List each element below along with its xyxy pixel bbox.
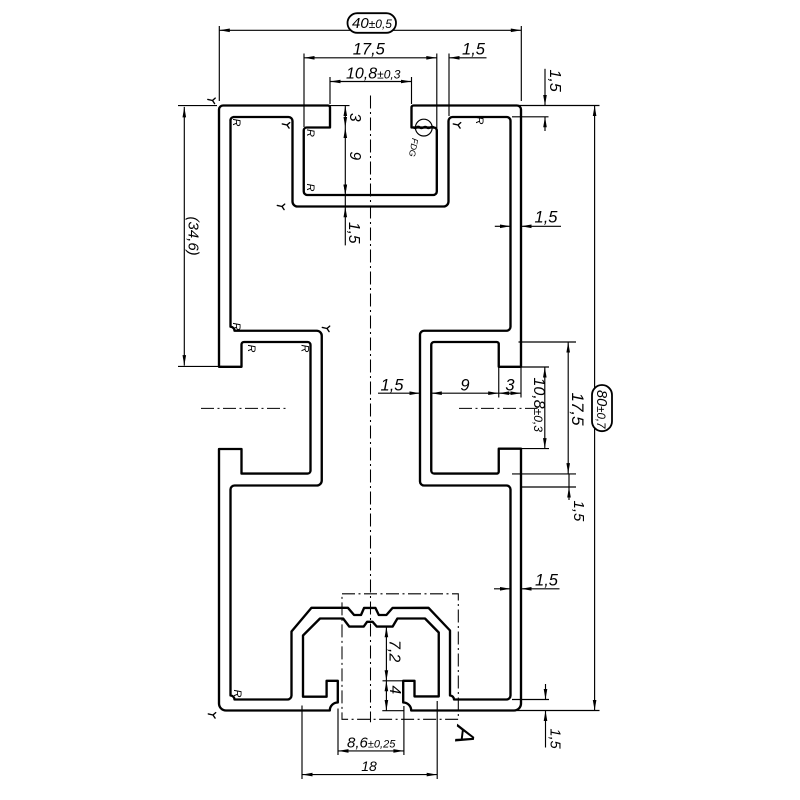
svg-text:18: 18 <box>361 758 377 774</box>
svg-text:80±0,7: 80±0,7 <box>593 390 609 429</box>
svg-text:1,5: 1,5 <box>546 70 563 92</box>
svg-text:R: R <box>245 345 257 353</box>
svg-text:R: R <box>230 119 242 127</box>
svg-text:9: 9 <box>346 152 363 161</box>
svg-text:1,5: 1,5 <box>381 377 405 395</box>
svg-text:R: R <box>230 323 242 331</box>
svg-text:1,5: 1,5 <box>345 222 362 244</box>
svg-text:3: 3 <box>505 377 515 395</box>
svg-text:R: R <box>304 129 316 137</box>
svg-text:1,5: 1,5 <box>535 572 559 590</box>
svg-text:17,5: 17,5 <box>568 393 587 427</box>
svg-text:R: R <box>231 690 243 698</box>
svg-text:4: 4 <box>386 686 403 695</box>
svg-text:10,8±0,3: 10,8±0,3 <box>530 378 547 433</box>
svg-text:1,5: 1,5 <box>462 41 486 59</box>
svg-text:40±0,5: 40±0,5 <box>352 15 392 32</box>
svg-text:R: R <box>473 117 485 125</box>
svg-text:10,8±0,3: 10,8±0,3 <box>346 66 401 83</box>
svg-text:17,5: 17,5 <box>353 41 386 59</box>
svg-text:1,5: 1,5 <box>570 501 587 523</box>
svg-text:9: 9 <box>460 377 469 395</box>
svg-text:R: R <box>304 184 316 192</box>
svg-text:1,5: 1,5 <box>547 729 563 750</box>
svg-text:1,5: 1,5 <box>535 209 559 227</box>
svg-text:(34,6): (34,6) <box>184 217 201 256</box>
svg-text:R: R <box>298 345 310 353</box>
svg-text:7,2: 7,2 <box>385 640 402 662</box>
svg-text:3: 3 <box>346 113 363 122</box>
